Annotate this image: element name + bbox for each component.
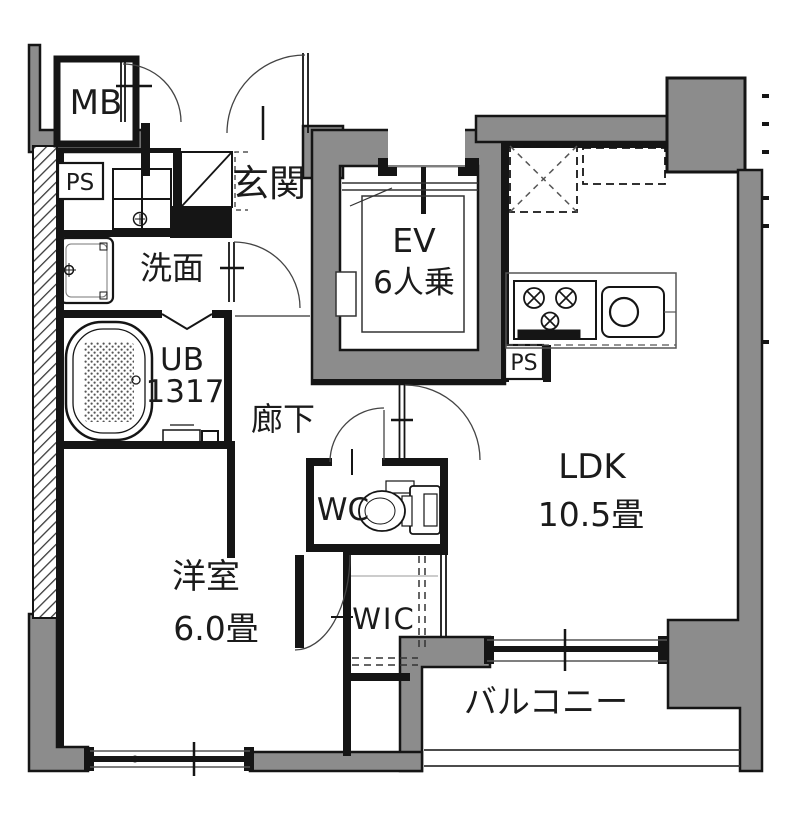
stove-icon (514, 281, 596, 339)
entrance-door-arc (227, 55, 305, 133)
pipe-space-kitchen-label: PS (510, 351, 537, 376)
washroom-label: 洗面 (140, 249, 204, 287)
elevator-label: EV (392, 221, 436, 260)
western-room-size: 6.0畳 (173, 609, 258, 648)
ldk-label: LDK (558, 447, 627, 487)
balcony-railing (424, 750, 740, 766)
washer-pan-icon (113, 169, 171, 229)
ldk-door-arc (405, 385, 480, 460)
room-labels: MB PS 玄関 洗面 UB 1317 廊下 EV 6人乗 PS WC LDK … (66, 83, 644, 721)
entrance-label: 玄関 (232, 162, 306, 205)
balcony-label: バルコニー (464, 682, 628, 721)
floor-plan-page: MB PS 玄関 洗面 UB 1317 廊下 EV 6人乗 PS WC LDK … (0, 0, 793, 825)
pipe-space-left-label: PS (66, 170, 94, 196)
unit-bath-label: UB (160, 342, 204, 378)
unit-bath-size: 1317 (146, 374, 225, 410)
wall-bottom-bar (250, 752, 422, 771)
toilet-icon (359, 481, 440, 534)
kitchen-area (506, 146, 676, 348)
washroom-door-arc (234, 242, 300, 308)
pillar-top-right (667, 78, 745, 172)
western-room-label: 洋室 (172, 557, 240, 597)
sink-icon (602, 287, 676, 337)
wc-label: WC (317, 492, 369, 528)
wall-right-band-and-pillar (668, 170, 762, 771)
wc-door-arc (330, 408, 384, 462)
elevator-capacity: 6人乗 (373, 265, 455, 301)
corridor-label: 廊下 (251, 400, 315, 438)
meter-box-label: MB (70, 83, 123, 123)
bath-folding-door (162, 314, 212, 329)
floor-plan: MB PS 玄関 洗面 UB 1317 廊下 EV 6人乗 PS WC LDK … (0, 0, 793, 825)
washbasin-icon (60, 238, 113, 303)
window-lock-dot (132, 756, 139, 763)
wall-kitchen-top-band (476, 116, 668, 142)
cupboard-icon (583, 148, 665, 184)
ldk-size: 10.5畳 (538, 495, 644, 534)
elevator-car-icon (362, 196, 464, 332)
wic-label: WIC (352, 602, 415, 636)
hatch-wall (33, 146, 57, 618)
